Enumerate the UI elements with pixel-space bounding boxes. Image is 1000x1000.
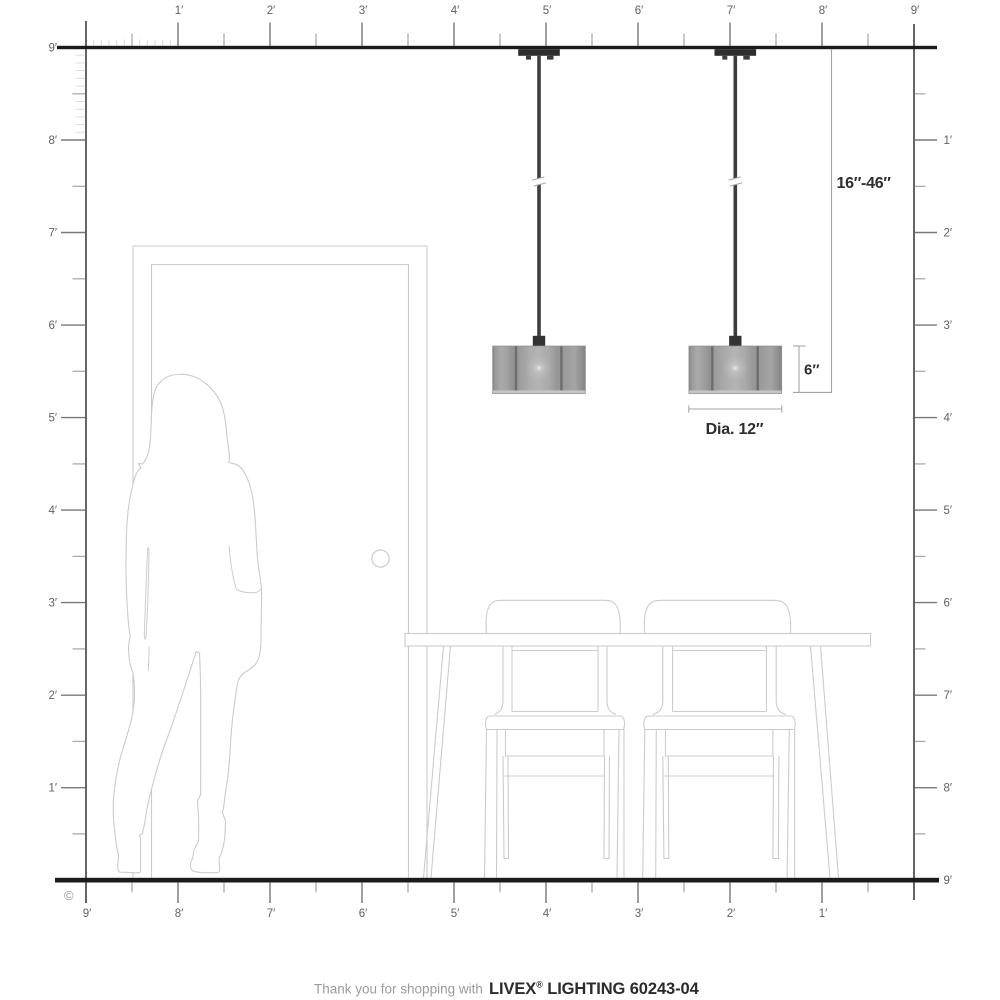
svg-text:2′: 2′ <box>944 228 953 240</box>
svg-text:3′: 3′ <box>48 598 57 610</box>
svg-text:7′: 7′ <box>267 908 276 920</box>
svg-text:1′: 1′ <box>175 5 184 17</box>
svg-text:4′: 4′ <box>543 908 552 920</box>
svg-text:8′: 8′ <box>48 135 57 147</box>
svg-text:9′: 9′ <box>944 875 953 887</box>
svg-text:2′: 2′ <box>727 908 736 920</box>
svg-text:4′: 4′ <box>944 413 953 425</box>
svg-text:7′: 7′ <box>944 690 953 702</box>
svg-text:2′: 2′ <box>48 690 57 702</box>
svg-text:2′: 2′ <box>267 5 276 17</box>
svg-text:4′: 4′ <box>48 505 57 517</box>
svg-text:5′: 5′ <box>48 413 57 425</box>
svg-text:4′: 4′ <box>451 5 460 17</box>
svg-text:3′: 3′ <box>635 908 644 920</box>
svg-text:8′: 8′ <box>944 783 953 795</box>
svg-text:8′: 8′ <box>819 5 828 17</box>
svg-text:9′: 9′ <box>48 43 57 55</box>
svg-text:1′: 1′ <box>944 135 953 147</box>
svg-text:9′: 9′ <box>83 908 92 920</box>
svg-text:1′: 1′ <box>48 783 57 795</box>
svg-text:LIVEX® LIGHTING 60243-04: LIVEX® LIGHTING 60243-04 <box>489 980 700 999</box>
svg-text:8′: 8′ <box>175 908 184 920</box>
svg-text:5′: 5′ <box>944 505 953 517</box>
svg-text:16″-46″: 16″-46″ <box>837 175 892 192</box>
svg-text:6″: 6″ <box>804 362 820 379</box>
svg-text:3′: 3′ <box>359 5 368 17</box>
svg-text:6′: 6′ <box>48 320 57 332</box>
svg-text:6′: 6′ <box>359 908 368 920</box>
svg-text:1′: 1′ <box>819 908 828 920</box>
svg-text:Dia. 12″: Dia. 12″ <box>706 421 764 438</box>
svg-text:6′: 6′ <box>635 5 644 17</box>
svg-text:9′: 9′ <box>911 5 920 17</box>
svg-text:7′: 7′ <box>48 228 57 240</box>
svg-text:Thank you for shopping with: Thank you for shopping with <box>314 982 483 997</box>
svg-text:5′: 5′ <box>451 908 460 920</box>
svg-text:7′: 7′ <box>727 5 736 17</box>
svg-text:6′: 6′ <box>944 598 953 610</box>
svg-text:5′: 5′ <box>543 5 552 17</box>
svg-text:3′: 3′ <box>944 320 953 332</box>
svg-text:©: © <box>64 888 74 903</box>
